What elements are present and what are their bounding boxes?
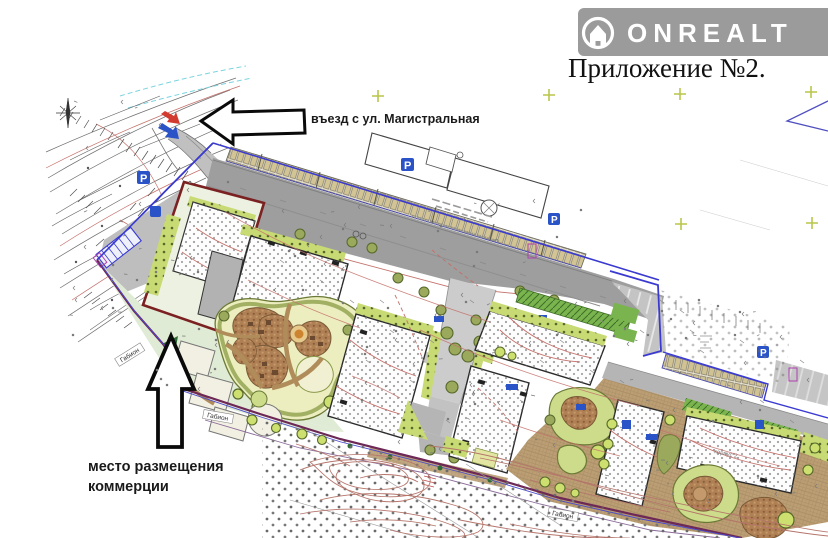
- svg-text:P: P: [404, 160, 411, 172]
- svg-text:въезд с ул. Магистральная: въезд с ул. Магистральная: [311, 112, 480, 126]
- svg-text:Приложение №2.: Приложение №2.: [568, 53, 766, 83]
- svg-text:P: P: [140, 173, 147, 185]
- svg-text:P: P: [551, 215, 558, 226]
- svg-text:место размещения: место размещения: [88, 459, 224, 475]
- svg-text:ONREALT: ONREALT: [627, 18, 793, 48]
- svg-text:коммерции: коммерции: [88, 479, 169, 495]
